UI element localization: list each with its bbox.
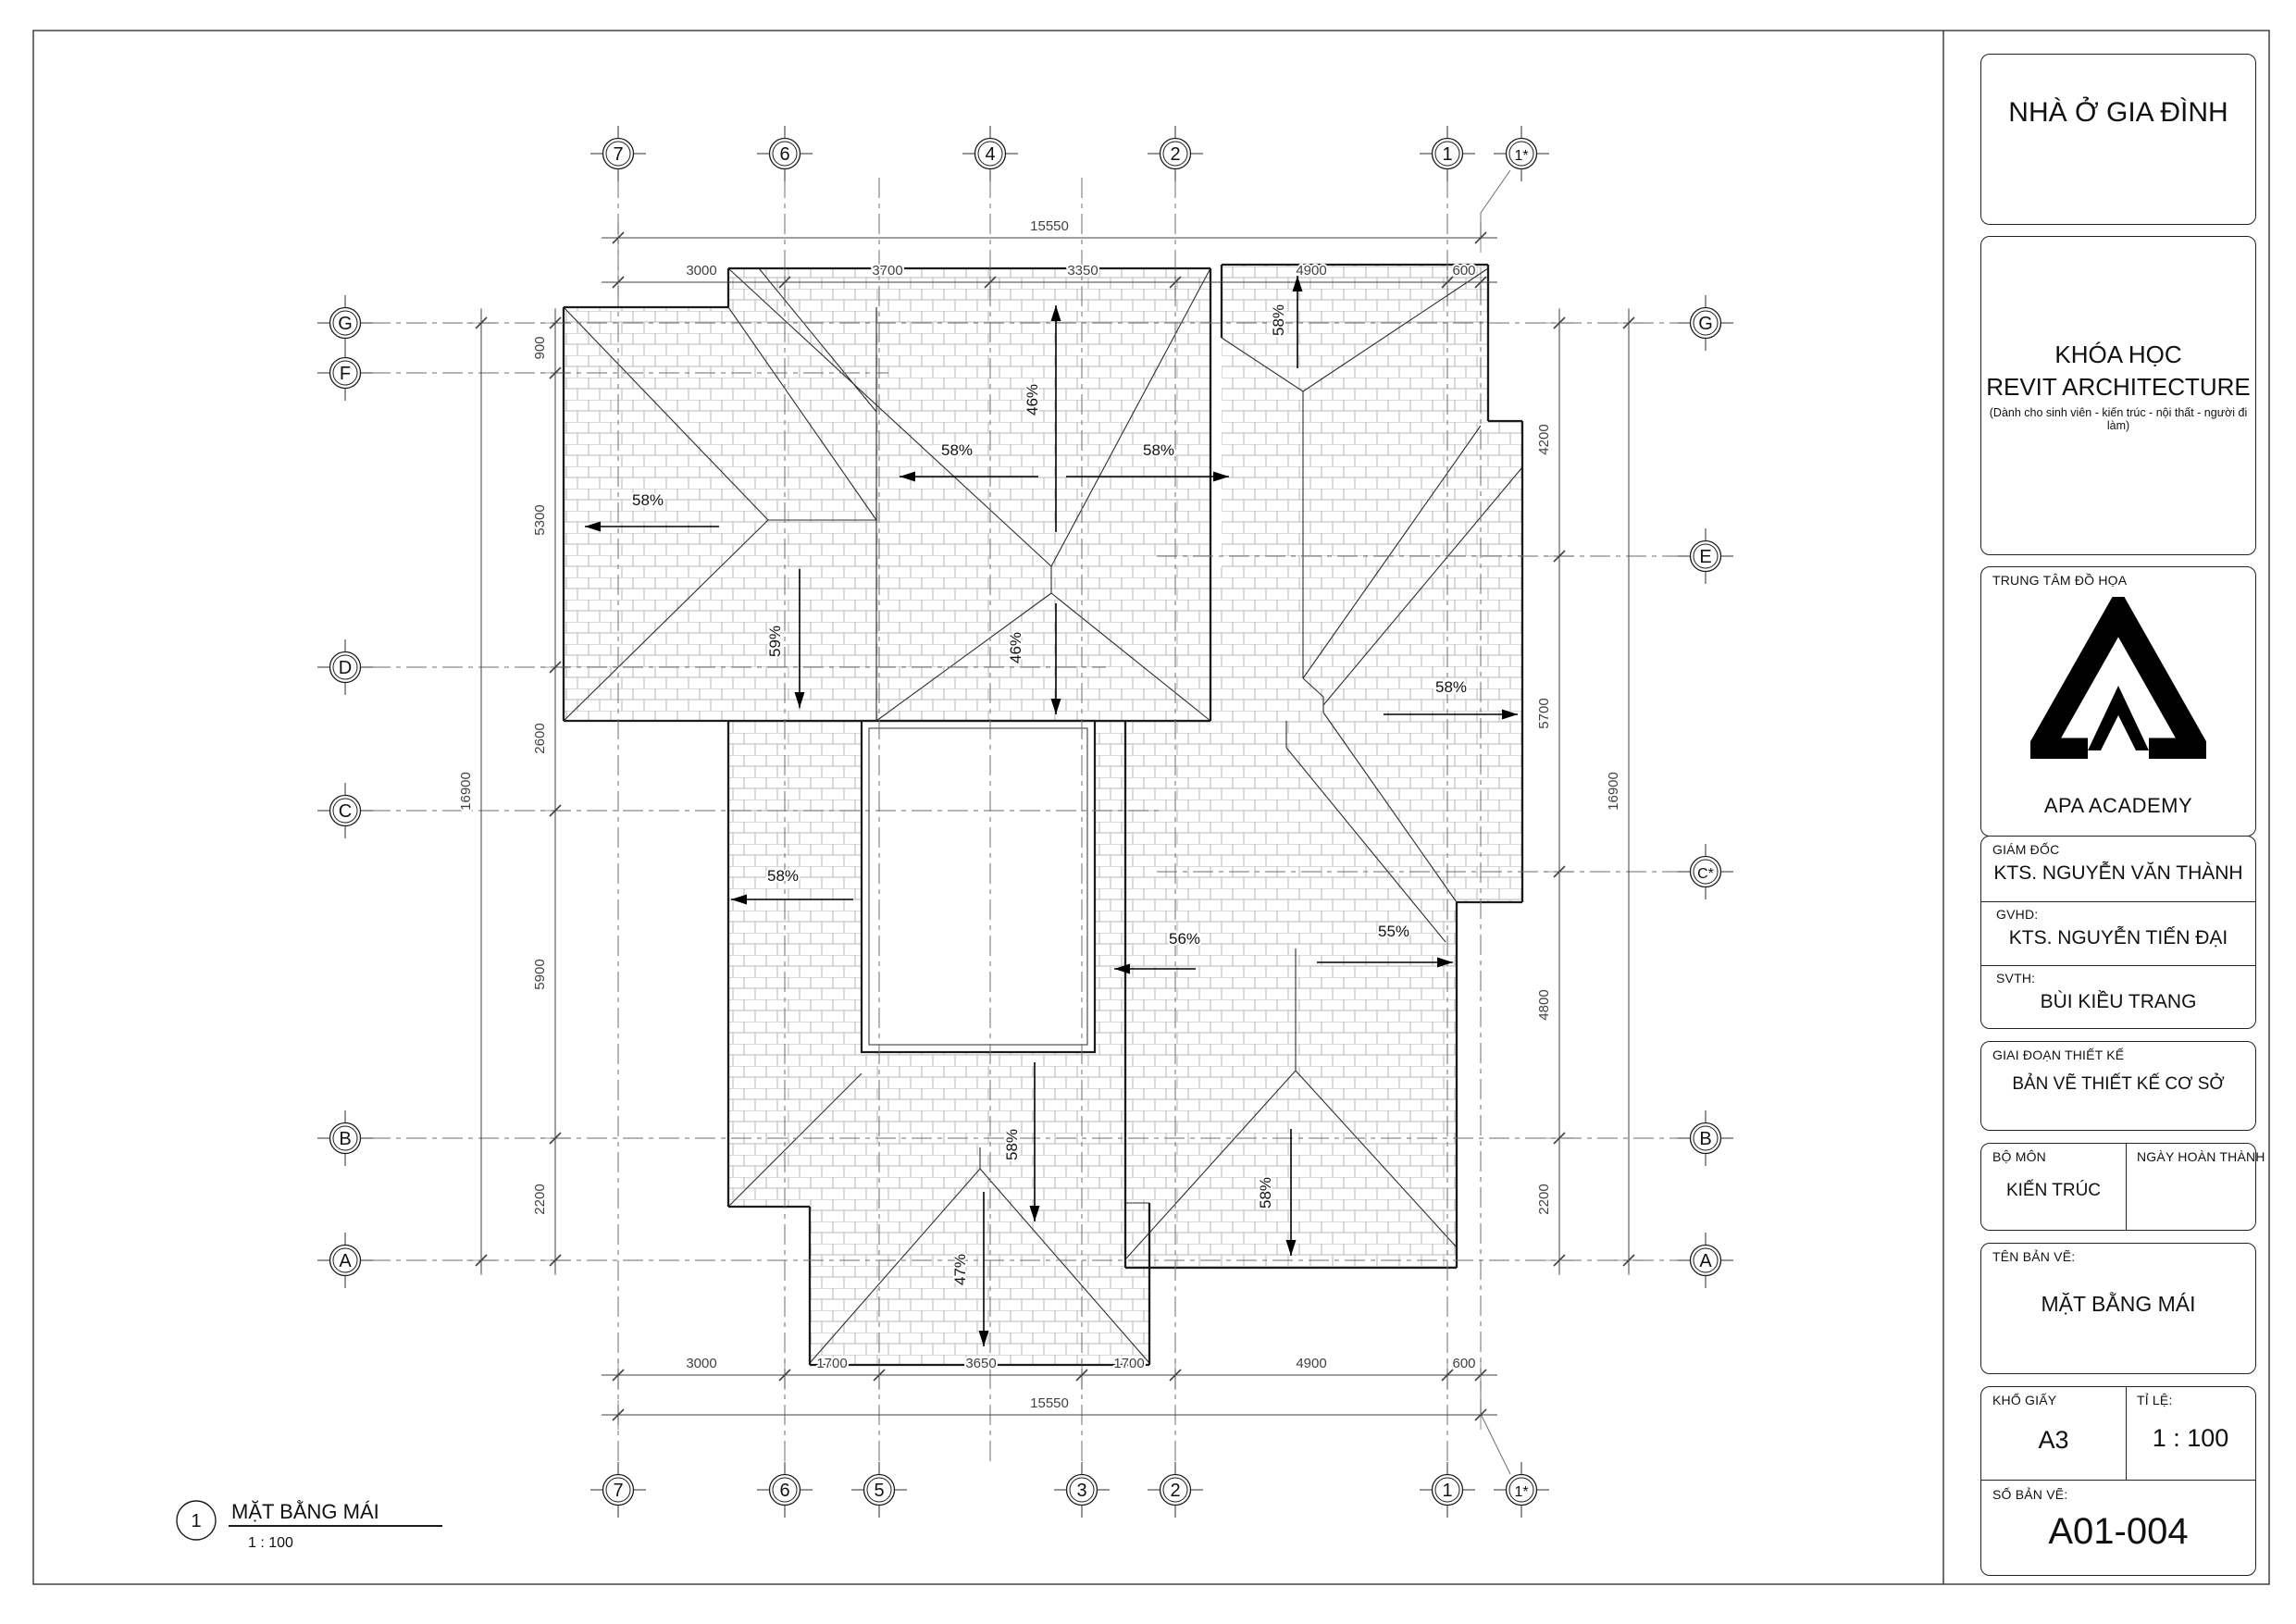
phase-label: GIAI ĐOẠN THIẾT KẾ xyxy=(1992,1048,2124,1062)
dimension-value: 2200 xyxy=(1536,1184,1552,1214)
grid-bubble-label: 6 xyxy=(779,1481,789,1501)
dimension-value: 2200 xyxy=(532,1184,548,1214)
dimension-value: 4900 xyxy=(1296,1356,1326,1371)
dimension-value: 16900 xyxy=(1606,772,1621,811)
dimension-value: 4800 xyxy=(1536,989,1552,1020)
grid-bubble-label: A xyxy=(1699,1251,1712,1271)
grid-bubble-label: 4 xyxy=(985,144,995,165)
drawing-sheet: 1555030003700335049006003000170036501700… xyxy=(0,0,2296,1624)
roof-hatch-region xyxy=(728,1052,1149,1365)
slope-label: 46% xyxy=(1024,384,1041,415)
titleblock-course: KHÓA HỌC REVIT ARCHITECTURE (Dành cho si… xyxy=(1980,236,2256,555)
slope-label: 58% xyxy=(632,491,664,509)
director-name: KTS. NGUYỄN VĂN THÀNH xyxy=(1981,862,2255,885)
grid-bubble-label: 1 xyxy=(1442,144,1452,165)
grid-bubble-label: 2 xyxy=(1170,144,1180,165)
grid-leader xyxy=(1481,1381,1510,1474)
grid-bubble-label: D xyxy=(339,658,352,678)
dimension-value: 5300 xyxy=(532,504,548,535)
center-name: APA ACADEMY xyxy=(1981,794,2255,818)
grid-bubble-D: D xyxy=(317,639,373,695)
dimension-value: 15550 xyxy=(1030,1395,1069,1411)
phase-value: BẢN VẼ THIẾT KẾ CƠ SỞ xyxy=(1981,1074,2255,1095)
number-label: SỐ BẢN VẼ: xyxy=(1992,1487,2067,1502)
paper-scale-row: KHỔ GIẤY A3 TỈ LỆ: 1 : 100 xyxy=(1981,1387,2255,1480)
grid-bubble-A: A xyxy=(317,1233,373,1288)
grid-bubble-label: 6 xyxy=(779,144,789,165)
titleblock-info: KHỔ GIẤY A3 TỈ LỆ: 1 : 100 SỐ BẢN VẼ: A0… xyxy=(1980,1386,2256,1576)
grid-bubble-label: C xyxy=(339,801,352,822)
dimension-value: 15550 xyxy=(1030,218,1069,234)
grid-bubble-G: G xyxy=(1678,295,1733,351)
dimension-value: 600 xyxy=(1452,263,1475,279)
view-scale: 1 : 100 xyxy=(248,1535,293,1551)
sheetname-value: MẶT BẰNG MÁI xyxy=(1981,1292,2255,1317)
grid-bubble-label: A xyxy=(339,1251,352,1271)
grid-bubble-7: 7 xyxy=(590,126,646,181)
titleblock-project: NHÀ Ở GIA ĐÌNH xyxy=(1980,54,2256,225)
grid-bubble-label: E xyxy=(1699,547,1711,567)
grid-bubble-1*: 1* xyxy=(1494,126,1549,181)
grid-bubble-label: 1* xyxy=(1514,148,1528,164)
slope-label: 58% xyxy=(1270,304,1287,336)
sheetname-label: TÊN BẢN VẼ: xyxy=(1992,1249,2075,1264)
dept-value: KIẾN TRÚC xyxy=(1981,1181,2126,1201)
slope-label: 46% xyxy=(1007,632,1024,663)
grid-bubble-B: B xyxy=(317,1110,373,1166)
dimension-value: 2600 xyxy=(532,723,548,753)
dimension-value: 600 xyxy=(1452,1356,1475,1371)
grid-bubble-3: 3 xyxy=(1054,1462,1110,1518)
grid-bubble-7: 7 xyxy=(590,1462,646,1518)
director-label: GIÁM ĐỐC xyxy=(1992,842,2059,857)
dimension-value: 4900 xyxy=(1296,263,1326,279)
grid-bubble-B: B xyxy=(1678,1110,1733,1166)
grid-bubble-G: G xyxy=(317,295,373,351)
grid-bubble-label: 3 xyxy=(1076,1481,1086,1501)
dimension-value: 4200 xyxy=(1536,424,1552,454)
dimension-value: 16900 xyxy=(458,772,474,811)
titleblock-academy: TRUNG TÂM ĐỒ HỌA APA ACADEMY xyxy=(1980,566,2256,837)
center-label: TRUNG TÂM ĐỒ HỌA xyxy=(1992,573,2127,588)
number-row: SỐ BẢN VẼ: A01-004 xyxy=(1981,1480,2255,1577)
grid-bubble-label: G xyxy=(1698,314,1713,334)
grid-bubble-C*: C* xyxy=(1678,844,1733,899)
grid-bubble-1: 1 xyxy=(1420,1462,1475,1518)
grid-bubble-label: F xyxy=(340,364,351,384)
gvhd-name: KTS. NGUYỄN TIẾN ĐẠI xyxy=(1981,927,2255,949)
grid-bubble-label: 5 xyxy=(874,1481,884,1501)
slope-label: 58% xyxy=(1435,678,1467,696)
grid-bubble-F: F xyxy=(317,345,373,401)
slope-label: 58% xyxy=(767,867,799,885)
grid-bubble-6: 6 xyxy=(757,126,813,181)
dimension-value: 3650 xyxy=(965,1356,996,1371)
grid-bubble-label: C* xyxy=(1697,866,1714,882)
course-line2: REVIT ARCHITECTURE xyxy=(1981,373,2255,402)
grid-bubble-E: E xyxy=(1678,528,1733,584)
grid-leader xyxy=(1481,170,1510,239)
roof-hatch-region xyxy=(1095,721,1125,1052)
grid-bubble-2: 2 xyxy=(1148,1462,1203,1518)
dimension-value: 3000 xyxy=(686,263,716,279)
titleblock-dept: BỘ MÔN KIẾN TRÚC NGÀY HOÀN THÀNH xyxy=(1980,1143,2256,1231)
slope-label: 47% xyxy=(951,1254,969,1285)
slope-label: 58% xyxy=(1257,1177,1274,1209)
course-line1: KHÓA HỌC xyxy=(1981,341,2255,369)
grid-bubble-2: 2 xyxy=(1148,126,1203,181)
courtyard-opening xyxy=(862,721,1095,1052)
slope-label: 58% xyxy=(1003,1129,1021,1160)
paper-label: KHỔ GIẤY xyxy=(1992,1393,2056,1407)
dimension-value: 900 xyxy=(532,336,548,359)
view-number: 1 xyxy=(191,1511,201,1531)
grid-bubble-label: 1 xyxy=(1442,1481,1452,1501)
slope-label: 59% xyxy=(766,626,784,657)
dimension-value: 5900 xyxy=(532,959,548,989)
paper-value: A3 xyxy=(1981,1426,2126,1455)
director-row: GIÁM ĐỐC KTS. NGUYỄN VĂN THÀNH xyxy=(1981,837,2255,901)
dimension-value: 3700 xyxy=(872,263,902,279)
view-title: MẶT BẰNG MÁI xyxy=(231,1500,379,1523)
gvhd-row: GVHD: KTS. NGUYỄN TIẾN ĐẠI xyxy=(1981,901,2255,965)
dimension-value: 5700 xyxy=(1536,698,1552,728)
gvhd-label: GVHD: xyxy=(1996,907,2038,922)
dimension-value: 1700 xyxy=(816,1356,847,1371)
roof-hatch-region xyxy=(728,721,862,1052)
grid-bubble-A: A xyxy=(1678,1233,1733,1288)
titleblock-people: GIÁM ĐỐC KTS. NGUYỄN VĂN THÀNH GVHD: KTS… xyxy=(1980,836,2256,1029)
grid-bubble-C: C xyxy=(317,783,373,838)
slope-label: 56% xyxy=(1169,930,1200,948)
grid-bubble-6: 6 xyxy=(757,1462,813,1518)
slope-label: 58% xyxy=(941,441,973,459)
scale-label: TỈ LỆ: xyxy=(2137,1393,2173,1407)
grid-bubble-5: 5 xyxy=(851,1462,907,1518)
roof-plan-drawing: 1555030003700335049006003000170036501700… xyxy=(0,0,2296,1624)
grid-bubble-label: 2 xyxy=(1170,1481,1180,1501)
date-label: NGÀY HOÀN THÀNH xyxy=(2137,1149,2265,1164)
titleblock-sheetname: TÊN BẢN VẼ: MẶT BẰNG MÁI xyxy=(1980,1243,2256,1374)
dimension-value: 3350 xyxy=(1067,263,1098,279)
svth-row: SVTH: BÙI KIỀU TRANG xyxy=(1981,965,2255,1030)
project-name: NHÀ Ở GIA ĐÌNH xyxy=(1981,96,2255,130)
svth-label: SVTH: xyxy=(1996,971,2035,986)
slope-label: 55% xyxy=(1378,923,1409,940)
dept-label: BỘ MÔN xyxy=(1992,1149,2046,1164)
dimension-value: 3000 xyxy=(686,1356,716,1371)
grid-bubble-1: 1 xyxy=(1420,126,1475,181)
scale-value: 1 : 100 xyxy=(2126,1424,2255,1453)
apa-academy-logo xyxy=(2030,597,2206,759)
course-note: (Dành cho sinh viên - kiến trúc - nội th… xyxy=(1981,406,2255,432)
titleblock-phase: GIAI ĐOẠN THIẾT KẾ BẢN VẼ THIẾT KẾ CƠ SỞ xyxy=(1980,1041,2256,1131)
grid-bubble-label: B xyxy=(339,1129,351,1149)
grid-bubble-label: G xyxy=(338,314,353,334)
grid-bubble-4: 4 xyxy=(962,126,1018,181)
grid-bubble-1*: 1* xyxy=(1494,1462,1549,1518)
grid-bubble-label: B xyxy=(1699,1129,1711,1149)
grid-bubble-label: 1* xyxy=(1514,1484,1528,1500)
slope-label: 58% xyxy=(1143,441,1174,459)
grid-bubble-label: 7 xyxy=(613,144,623,165)
grid-bubble-label: 7 xyxy=(613,1481,623,1501)
svth-name: BÙI KIỀU TRANG xyxy=(1981,991,2255,1013)
number-value: A01-004 xyxy=(1981,1511,2255,1553)
dimension-value: 1700 xyxy=(1113,1356,1144,1371)
